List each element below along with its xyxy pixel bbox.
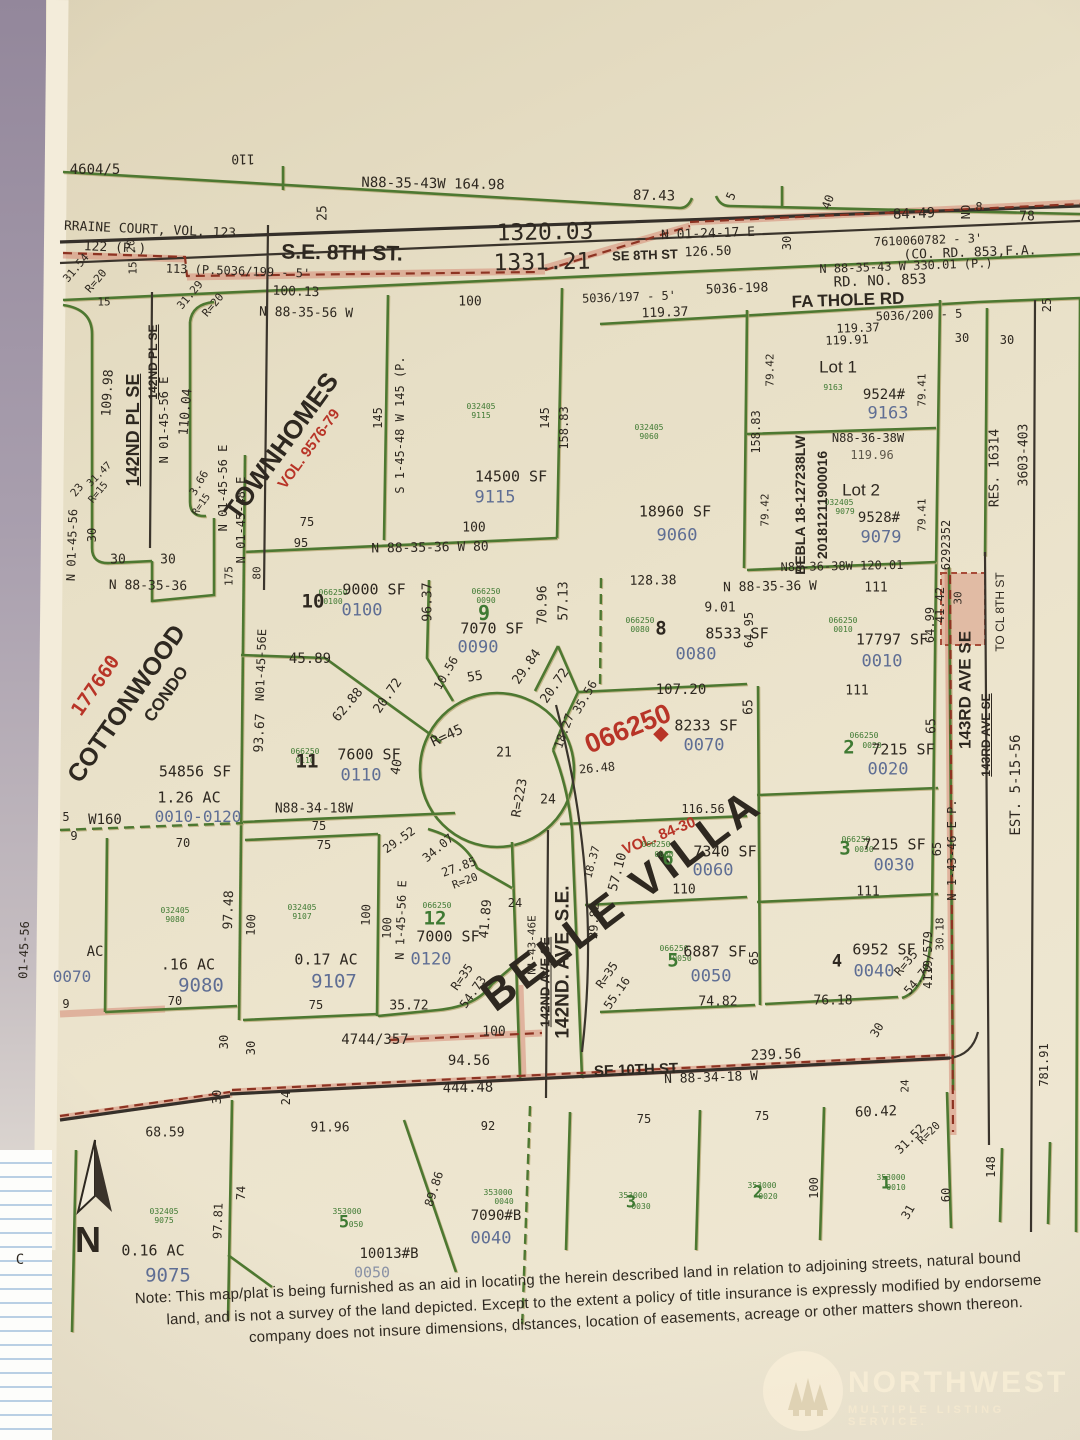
map-label: 142ND PL SE: [124, 374, 142, 487]
map-label: N 88-35-36: [109, 579, 187, 593]
map-label: 14500 SF: [475, 470, 547, 485]
map-label: 032405: [161, 907, 190, 915]
map-label: 100: [458, 296, 481, 309]
map-label: SE 8TH ST: [612, 247, 678, 262]
north-arrow-icon: [78, 1140, 112, 1212]
map-label: 10013#B: [359, 1247, 418, 1261]
map-label: 353000: [484, 1189, 513, 1197]
map-label: 64.99: [924, 607, 936, 643]
map-label: 24: [540, 794, 556, 807]
map-label: 9060: [639, 433, 658, 441]
map-label: 032405: [635, 424, 664, 432]
map-label: 0110: [341, 768, 382, 785]
map-label: 128.38: [629, 574, 676, 588]
map-label: 24: [900, 1079, 911, 1092]
map-label: N 01-24-17 E: [661, 226, 755, 242]
map-label: N 88-35-36 W 80: [371, 540, 489, 555]
map-label: 0070: [53, 969, 92, 985]
map-label: 92: [481, 1120, 495, 1132]
map-label: 30: [1000, 334, 1014, 346]
map-label: 65: [931, 842, 943, 856]
map-label: 145: [539, 407, 551, 429]
map-label: 78: [1019, 211, 1035, 224]
map-label: 0010-0120: [155, 809, 242, 825]
map-label: 35.72: [389, 1000, 428, 1013]
map-label: 8: [975, 201, 982, 213]
map-label: N1-43-46E: [527, 915, 538, 975]
map-label: 21: [496, 747, 512, 760]
map-label: 119.37: [641, 306, 688, 321]
map-label: N: [75, 1222, 101, 1258]
map-label: 0010: [862, 654, 903, 671]
map-label: N 1-45-56 E: [394, 880, 409, 960]
map-label: Lot 1: [819, 359, 857, 376]
map-label: AC: [87, 945, 104, 959]
map-label: 1.26 AC: [157, 791, 220, 806]
map-label: 75: [312, 820, 326, 832]
map-label: 050: [349, 1221, 363, 1229]
map-label: 80: [252, 566, 263, 579]
map-label: 30.18: [935, 917, 946, 950]
map-label: 5036-198: [705, 281, 768, 296]
map-label: 8233 SF: [674, 719, 737, 734]
map-label: 29.82: [587, 903, 601, 940]
map-label: 0020: [868, 762, 909, 779]
map-label: 64.95: [743, 612, 755, 648]
map-label: 84.49: [893, 206, 936, 221]
map-label: 9528#: [858, 511, 900, 525]
map-label: 30: [953, 591, 964, 604]
map-label: .16 AC: [161, 958, 215, 973]
map-label: 20: [126, 239, 137, 252]
map-label: 9107: [311, 973, 357, 992]
map-label: 70: [176, 837, 190, 849]
map-label: 143RD AVE SE: [980, 693, 992, 776]
map-label: 6887 SF: [683, 945, 746, 960]
map-label: N 01-45-56 E: [158, 377, 170, 464]
map-label: 68.59: [145, 1127, 184, 1140]
map-label: 93.67: [252, 713, 267, 753]
map-label: 5: [339, 1215, 349, 1232]
map-label: 0100: [342, 603, 383, 620]
map-label: 95: [294, 537, 308, 549]
map-label: 79.41: [917, 373, 928, 406]
map-label: Lot 2: [842, 482, 880, 499]
map-label: 158.83: [558, 406, 570, 449]
map-label: 24: [280, 1091, 292, 1105]
map-label: 15: [128, 261, 139, 274]
map-label: 7070 SF: [460, 622, 523, 637]
map-label: 1320.03: [496, 221, 593, 246]
map-label: 0040: [494, 1198, 513, 1206]
map-label: 75: [317, 839, 331, 851]
map-label: 70: [168, 995, 182, 1007]
map-label: 7215 SF: [871, 743, 934, 758]
map-label: 9163: [868, 406, 909, 423]
map-label: 76.18: [813, 995, 852, 1008]
map-label: 142ND AVE SE: [539, 937, 552, 1027]
map-label: 60: [940, 1188, 952, 1202]
map-label: N01-45-56E: [254, 629, 269, 702]
map-label: 9000 SF: [342, 583, 405, 598]
map-label: 91.96: [310, 1122, 349, 1135]
map-label: RES. 16314: [989, 429, 1002, 507]
map-label: 5036/200 - 5: [875, 307, 962, 322]
map-label: 9: [70, 830, 77, 842]
map-label: 30: [218, 1035, 230, 1049]
map-label: 0.17 AC: [294, 953, 357, 968]
map-label: 11: [296, 753, 319, 772]
map-label: 0030: [874, 858, 915, 875]
map-label: 9075: [145, 1267, 191, 1286]
map-label: 032405: [288, 904, 317, 912]
map-label: 75: [309, 999, 323, 1011]
map-label: 148: [985, 1156, 997, 1178]
map-label: W160: [88, 813, 122, 827]
map-label: 15: [97, 297, 110, 308]
map-label: 75: [300, 516, 314, 528]
map-label: 066250: [626, 617, 655, 625]
map-label: 94.56: [448, 1054, 490, 1068]
map-label: 066250: [472, 588, 501, 596]
map-label: 0070: [684, 738, 725, 755]
map-label: 142ND. AVE. S.E.: [554, 885, 573, 1038]
map-label: N88-36-38W: [832, 432, 904, 444]
nwmls-watermark: NORTHWEST MULTIPLE LISTING SERVICE.: [740, 1348, 1070, 1434]
map-label: 9.01: [704, 602, 735, 615]
map-label: 30: [86, 528, 98, 542]
map-label: 30: [110, 554, 126, 567]
map-label: 75: [637, 1113, 651, 1125]
map-label: 97.81: [211, 1203, 224, 1240]
map-label: 7000 SF: [416, 930, 479, 945]
map-label: 110: [231, 152, 254, 165]
map-label: 100: [245, 914, 258, 936]
map-label: 3: [839, 840, 850, 859]
map-label: N 1-43-46 E P.: [946, 799, 958, 900]
map-label: 24: [508, 897, 522, 909]
map-label: 8533 SF: [705, 627, 768, 642]
map-label: 87.43: [633, 189, 675, 204]
plat-map-photo: 4604/5110N88-35-43W 164.9887.432554084.4…: [0, 0, 1080, 1440]
map-label: 5036/197 - 5': [582, 289, 676, 304]
map-label: 25: [317, 205, 330, 221]
map-label: N 88-35-56 W: [259, 306, 353, 321]
map-label: 158.83: [750, 410, 762, 453]
map-label: N 88-34-18 W: [664, 1070, 758, 1086]
map-label: 0040: [854, 964, 895, 981]
map-label: ◆: [653, 720, 669, 746]
map-label: 0120: [411, 952, 452, 969]
map-label: 7215 SF: [862, 838, 925, 853]
map-label: 119.96: [850, 449, 893, 461]
map-label: 0090: [458, 640, 499, 657]
map-label: 8: [655, 620, 666, 639]
map-label: 0010: [833, 626, 852, 634]
map-label: 70.96: [537, 585, 550, 624]
map-label: N88-35-43W 164.98: [361, 176, 505, 192]
map-label: 0020: [758, 1193, 777, 1201]
map-label: 9079: [835, 508, 854, 516]
watermark-name: NORTHWEST: [848, 1366, 1070, 1400]
map-label: 4604/5: [70, 163, 121, 177]
map-label: BEBLA 18-127238LW: [793, 435, 807, 575]
map-label: 9079: [861, 530, 902, 547]
map-label: 143RD AVE SE: [957, 631, 974, 749]
map-label: 79.42: [765, 353, 776, 386]
map-label: 100: [462, 522, 485, 535]
map-label: 30: [160, 554, 176, 567]
map-label: NO: [960, 205, 972, 219]
map-label: 30: [245, 1041, 257, 1055]
map-label: RD. NO. 853: [833, 272, 926, 289]
map-label: 9107: [292, 913, 311, 921]
map-label: 107.20: [656, 683, 707, 697]
map-label: 7600 SF: [337, 748, 400, 763]
map-label: 0040: [471, 1231, 512, 1248]
map-label: FA THOLE RD: [791, 290, 904, 311]
map-label: 781.91: [1038, 1043, 1050, 1086]
map-label: 0030: [631, 1203, 650, 1211]
map-label: 9115: [471, 412, 490, 420]
map-label: 30: [955, 332, 969, 344]
map-label: 239.56: [750, 1047, 801, 1063]
map-label: N 01-45-56: [65, 509, 80, 582]
map-label: 100: [381, 917, 394, 939]
map-label: 45.89: [289, 652, 331, 666]
map-label: 30: [781, 236, 793, 250]
map-label: 9115: [475, 490, 516, 507]
map-label: 126.50: [684, 245, 731, 260]
map-label: 65: [926, 718, 939, 734]
map-label: 119.91: [825, 333, 869, 347]
map-label: N 88-35-36 W: [723, 580, 817, 595]
map-label: 111: [845, 685, 868, 698]
map-label: 7090#B: [471, 1209, 522, 1223]
map-label: 032405: [467, 403, 496, 411]
map-label: 18960 SF: [639, 505, 711, 520]
map-label: 9080: [178, 977, 224, 996]
map-label: 17797 SF: [856, 633, 928, 648]
map-label: 74: [235, 1186, 247, 1201]
map-label: 6292352: [940, 520, 952, 571]
map-label: 0080: [630, 626, 649, 634]
map-label: 0.16 AC: [121, 1244, 184, 1259]
map-label: 111: [864, 582, 887, 595]
map-label: C: [16, 1253, 24, 1267]
map-label: 5: [62, 811, 69, 823]
map-label: 79.41: [917, 498, 928, 531]
map-label: 100: [808, 1177, 820, 1199]
map-label: 9524#: [863, 388, 905, 402]
map-label: 12: [424, 910, 447, 929]
map-label: 57.13: [558, 581, 571, 620]
map-label: 100: [360, 904, 373, 926]
map-label: 97.48: [222, 890, 236, 930]
map-label: 3603-403: [1018, 424, 1031, 487]
map-label: 6: [662, 850, 673, 869]
map-label: 7340 SF: [693, 845, 756, 860]
map-label: 75: [755, 1110, 769, 1122]
map-label: 55: [466, 669, 484, 685]
map-label: 110: [672, 884, 695, 897]
map-label: 4: [832, 954, 842, 971]
map-label: 26.48: [578, 760, 615, 775]
map-label: 2: [843, 739, 854, 758]
map-label: 79.42: [760, 493, 771, 526]
map-label: 109.98: [100, 369, 115, 417]
map-label: S 1-45-48 W 145 (P.: [394, 356, 406, 493]
map-label: 30: [211, 1090, 223, 1104]
map-label: 0060: [693, 863, 734, 880]
map-label: 74.82: [698, 996, 737, 1009]
map-label: 9060: [657, 528, 698, 545]
map-label: 9: [62, 998, 69, 1010]
map-label: 9163: [823, 384, 842, 392]
map-label: 96.37: [422, 582, 435, 621]
map-label: 0050: [691, 969, 732, 986]
map-label: 444.48: [443, 1081, 494, 1096]
map-label: EST. 5-15-56: [1009, 734, 1023, 835]
map-label: 20181211900016: [815, 451, 829, 559]
map-label: 145: [372, 407, 384, 429]
map-label: 100: [482, 1026, 505, 1039]
map-label: 9080: [165, 916, 184, 924]
watermark-subtitle: MULTIPLE LISTING SERVICE.: [848, 1404, 1070, 1428]
map-label: 65: [743, 699, 756, 715]
map-label: 01-45-56: [17, 921, 31, 979]
map-label: 110.04: [177, 388, 194, 436]
map-label: 100.13: [272, 285, 319, 300]
map-label: 0080: [676, 647, 717, 664]
map-label: 60.42: [855, 1104, 898, 1119]
map-label: 65: [748, 951, 760, 965]
map-label: 111: [856, 886, 879, 899]
map-label: TO CL 8TH ST: [994, 572, 1006, 651]
nwmls-logo-icon: [760, 1348, 846, 1434]
map-label: 066250: [829, 617, 858, 625]
map-label: 4744/357: [341, 1033, 408, 1047]
map-label: 41.89: [478, 899, 494, 939]
map-label: 5: [667, 952, 678, 971]
map-label: 10: [302, 593, 325, 612]
map-label: 25: [1041, 298, 1053, 312]
map-label: 175: [224, 566, 235, 586]
map-label: N88-34-18W: [275, 803, 353, 816]
map-label: 032405: [150, 1208, 179, 1216]
map-label: 54856 SF: [159, 765, 231, 780]
map-label: S.E. 8TH ST.: [281, 241, 403, 264]
map-label: 0100: [323, 598, 342, 606]
map-label: 1331.21: [493, 251, 590, 276]
map-label: 9075: [154, 1217, 173, 1225]
map-label: N 01-45-56 E: [217, 445, 229, 532]
map-label: 0010: [886, 1184, 905, 1192]
